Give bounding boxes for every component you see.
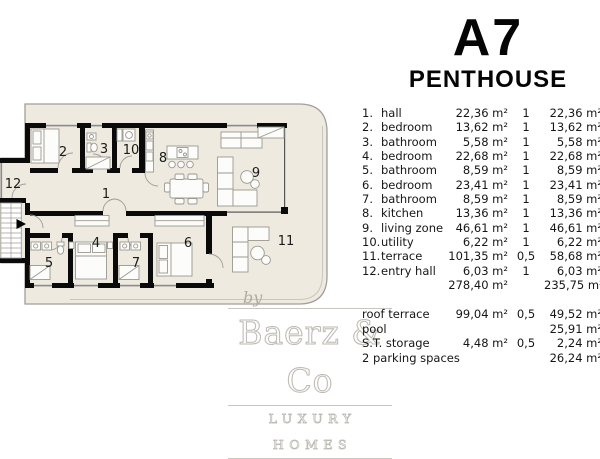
row-weighted: 6,03 m² [544,264,600,278]
room-label-6: 6 [184,236,192,251]
row-factor: 1 [508,163,544,177]
row-weighted: 22,36 m² [544,106,600,120]
row-weighted: 58,68 m² [544,249,600,263]
extras-block: roof terrace99,04 m²0,549,52 m² pool25,9… [362,307,600,364]
row-area: 6,22 m² [447,235,508,249]
row-weighted: 8,59 m² [544,192,600,206]
row-name: bathroom [381,163,447,177]
row-area: 5,58 m² [447,135,508,149]
row-factor: 1 [508,135,544,149]
row-weighted: 13,62 m² [544,120,600,134]
row-area: 13,36 m² [447,206,508,220]
row-weighted: 13,36 m² [544,206,600,220]
extra-row: roof terrace99,04 m²0,549,52 m² [362,307,600,321]
row-name: terrace [381,249,447,263]
row-factor: 0,5 [508,336,544,350]
row-num: 3. [362,135,381,149]
bedroom4-furniture [69,242,113,279]
table-row: 2.bedroom13,62 m²113,62 m² [362,120,600,134]
row-name: utility [381,235,447,249]
room-label-2: 2 [59,145,67,160]
row-num: 5. [362,163,381,177]
unit-title: A7 [375,10,600,66]
row-factor: 1 [508,221,544,235]
area-table: 1.hall22,36 m²122,36 m² 2.bedroom13,62 m… [362,106,600,365]
room-label-1: 1 [102,187,110,202]
row-area: 4,48 m² [447,336,508,350]
row-num: 1. [362,106,381,120]
row-num: 9. [362,221,381,235]
row-name [381,278,447,292]
row-num: 12. [362,264,381,278]
page: { "header": { "title": "A7", "subtitle":… [0,0,600,400]
room-label-10: 10 [123,143,140,158]
row-area: 22,36 m² [447,106,508,120]
table-row: 4.bedroom22,68 m²122,68 m² [362,149,600,163]
table-row: 6.bedroom23,41 m²123,41 m² [362,178,600,192]
table-total-row: 278,40 m²235,75 m² [362,278,600,292]
row-area: 46,61 m² [447,221,508,235]
row-name: hall [381,106,447,120]
row-weighted: 6,22 m² [544,235,600,249]
table-row: 3.bathroom5,58 m²15,58 m² [362,135,600,149]
row-num: 6. [362,178,381,192]
room-label-3: 3 [100,142,108,157]
row-factor [508,322,544,336]
title-block: A7 PENTHOUSE [375,10,600,93]
row-weighted: 49,52 m² [544,307,600,321]
table-row: 10.utility6,22 m²16,22 m² [362,235,600,249]
row-factor [508,278,544,292]
row-weighted: 2,24 m² [544,336,600,350]
row-name: entry hall [381,264,447,278]
row-area: 99,04 m² [447,307,508,321]
table-row: 9.living zone46,61 m²146,61 m² [362,221,600,235]
room-label-4: 4 [92,236,100,251]
row-weighted: 22,68 m² [544,149,600,163]
room-label-8: 8 [159,151,167,166]
extra-row: 2 parking spaces26,24 m² [362,351,600,365]
utility-appliances [117,129,135,141]
room-label-9: 9 [252,166,260,181]
row-weighted: 46,61 m² [544,221,600,235]
watermark-tagline: LUXURY HOMES [228,406,392,458]
room-label-12: 12 [5,177,22,192]
row-factor: 1 [508,264,544,278]
extra-row: pool25,91 m² [362,322,600,336]
table-row: 11.terrace101,35 m²0,558,68 m² [362,249,600,263]
unit-subtitle: PENTHOUSE [375,67,600,93]
table-row: 12.entry hall6,03 m²16,03 m² [362,264,600,278]
row-num: 4. [362,149,381,163]
row-name: pool [362,322,447,336]
row-num: 2. [362,120,381,134]
floor-plan: 1 2 3 4 5 6 7 8 9 10 11 12 [0,95,345,320]
table-row: 5.bathroom8,59 m²18,59 m² [362,163,600,177]
row-name: bathroom [381,135,447,149]
row-area [447,351,508,365]
row-name: kitchen [381,206,447,220]
row-weighted: 5,58 m² [544,135,600,149]
room-label-7: 7 [132,256,140,271]
row-area: 8,59 m² [447,192,508,206]
row-area: 101,35 m² [447,249,508,263]
row-area: 22,68 m² [447,149,508,163]
row-weighted: 26,24 m² [544,351,600,365]
row-num: 8. [362,206,381,220]
row-name: S.T. storage [362,336,447,350]
row-factor: 1 [508,149,544,163]
row-area: 13,62 m² [447,120,508,134]
row-weighted: 25,91 m² [544,322,600,336]
row-name: 2 parking spaces [362,351,447,365]
row-factor: 1 [508,120,544,134]
row-factor: 1 [508,192,544,206]
row-name: bedroom [381,120,447,134]
row-weighted: 23,41 m² [544,178,600,192]
table-row: 8.kitchen13,36 m²113,36 m² [362,206,600,220]
table-row: 7.bathroom8,59 m²18,59 m² [362,192,600,206]
row-factor: 0,5 [508,307,544,321]
room-label-11: 11 [278,234,295,249]
row-factor: 1 [508,178,544,192]
row-area: 6,03 m² [447,264,508,278]
row-num: 10. [362,235,381,249]
row-num: 11. [362,249,381,263]
row-area [447,322,508,336]
row-factor: 0,5 [508,249,544,263]
row-name: bedroom [381,149,447,163]
row-weighted: 8,59 m² [544,163,600,177]
row-name: bedroom [381,178,447,192]
row-num [362,278,381,292]
row-name: roof terrace [362,307,447,321]
row-name: living zone [381,221,447,235]
row-num: 7. [362,192,381,206]
total-area: 278,40 m² [447,278,508,292]
table-row: 1.hall22,36 m²122,36 m² [362,106,600,120]
row-area: 23,41 m² [447,178,508,192]
total-weighted: 235,75 m² [544,278,600,292]
extra-row: S.T. storage4,48 m²0,52,24 m² [362,336,600,350]
row-name: bathroom [381,192,447,206]
room-label-5: 5 [45,256,53,271]
row-factor: 1 [508,235,544,249]
row-area: 8,59 m² [447,163,508,177]
row-factor: 1 [508,206,544,220]
row-factor: 1 [508,106,544,120]
bedroom2-furniture [31,129,59,163]
row-factor [508,351,544,365]
watermark-by: by [243,288,262,307]
